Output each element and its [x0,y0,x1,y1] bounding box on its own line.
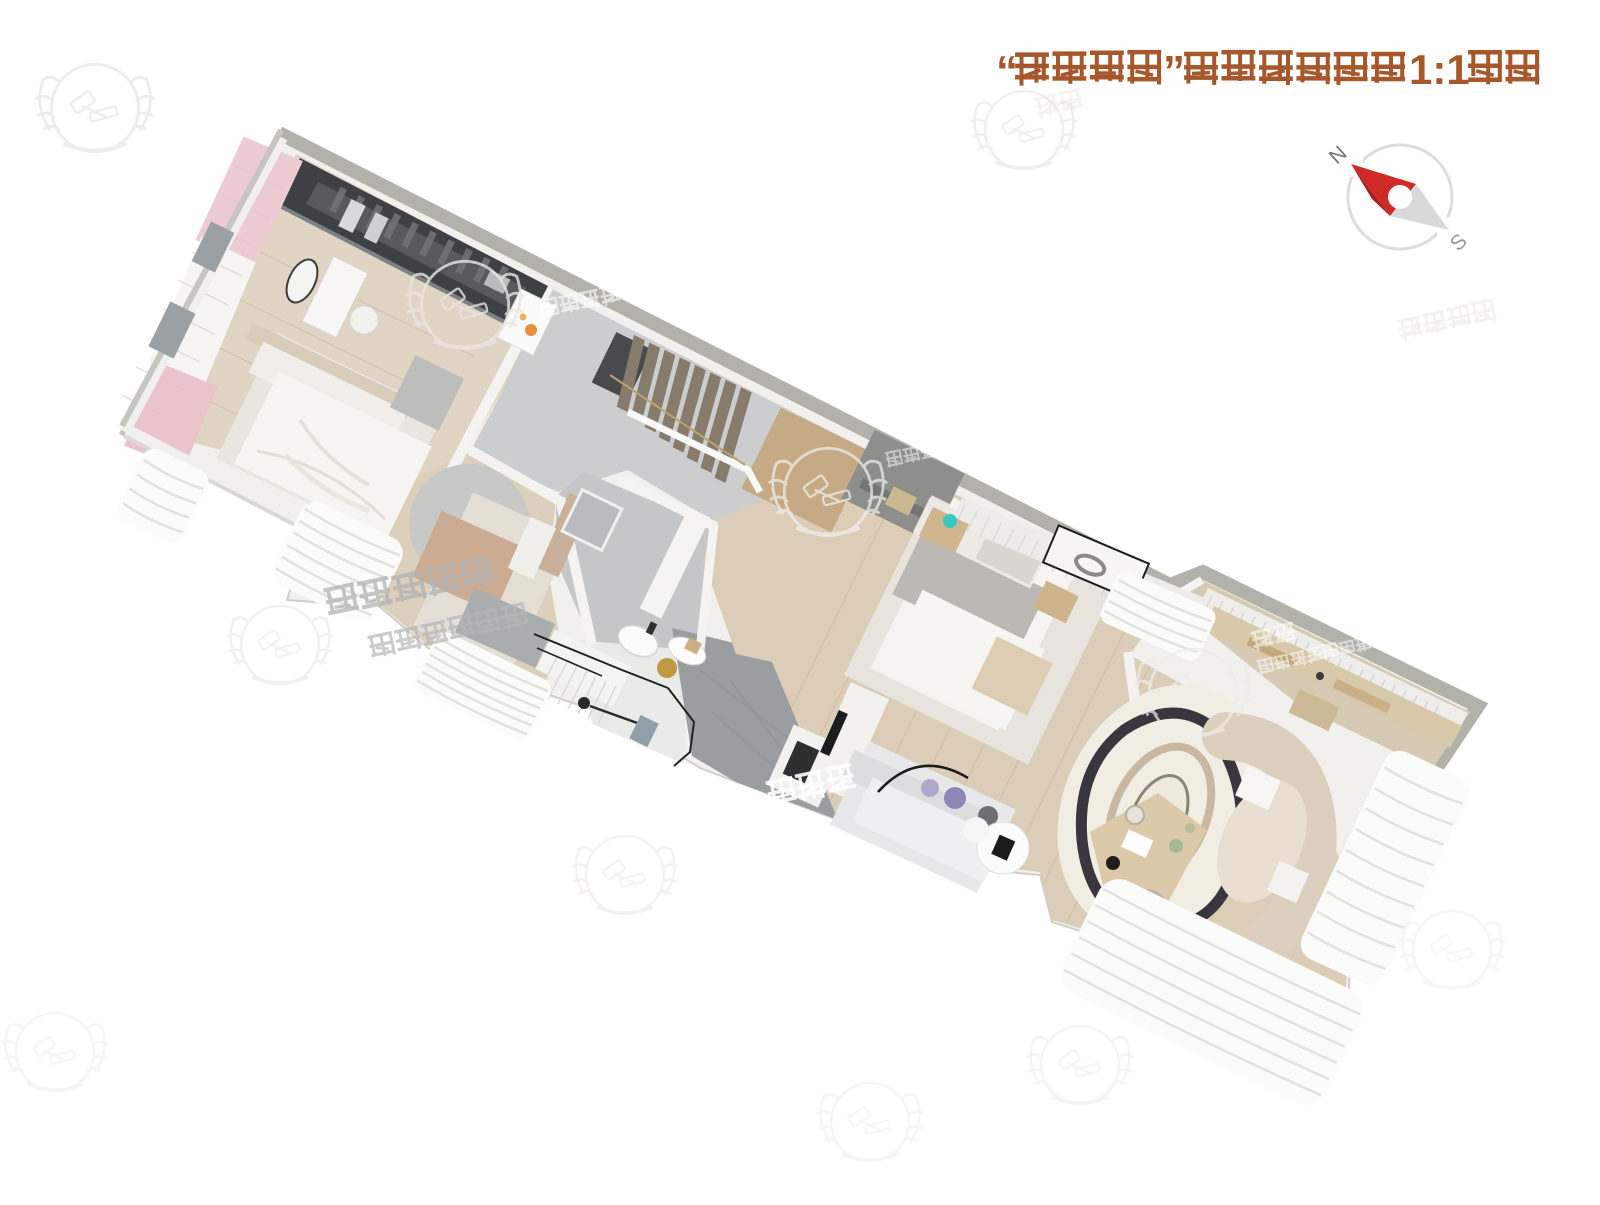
svg-text:1:1: 1:1 [1409,46,1470,93]
svg-text:”: ” [1163,47,1185,96]
svg-text:“: “ [996,47,1018,96]
